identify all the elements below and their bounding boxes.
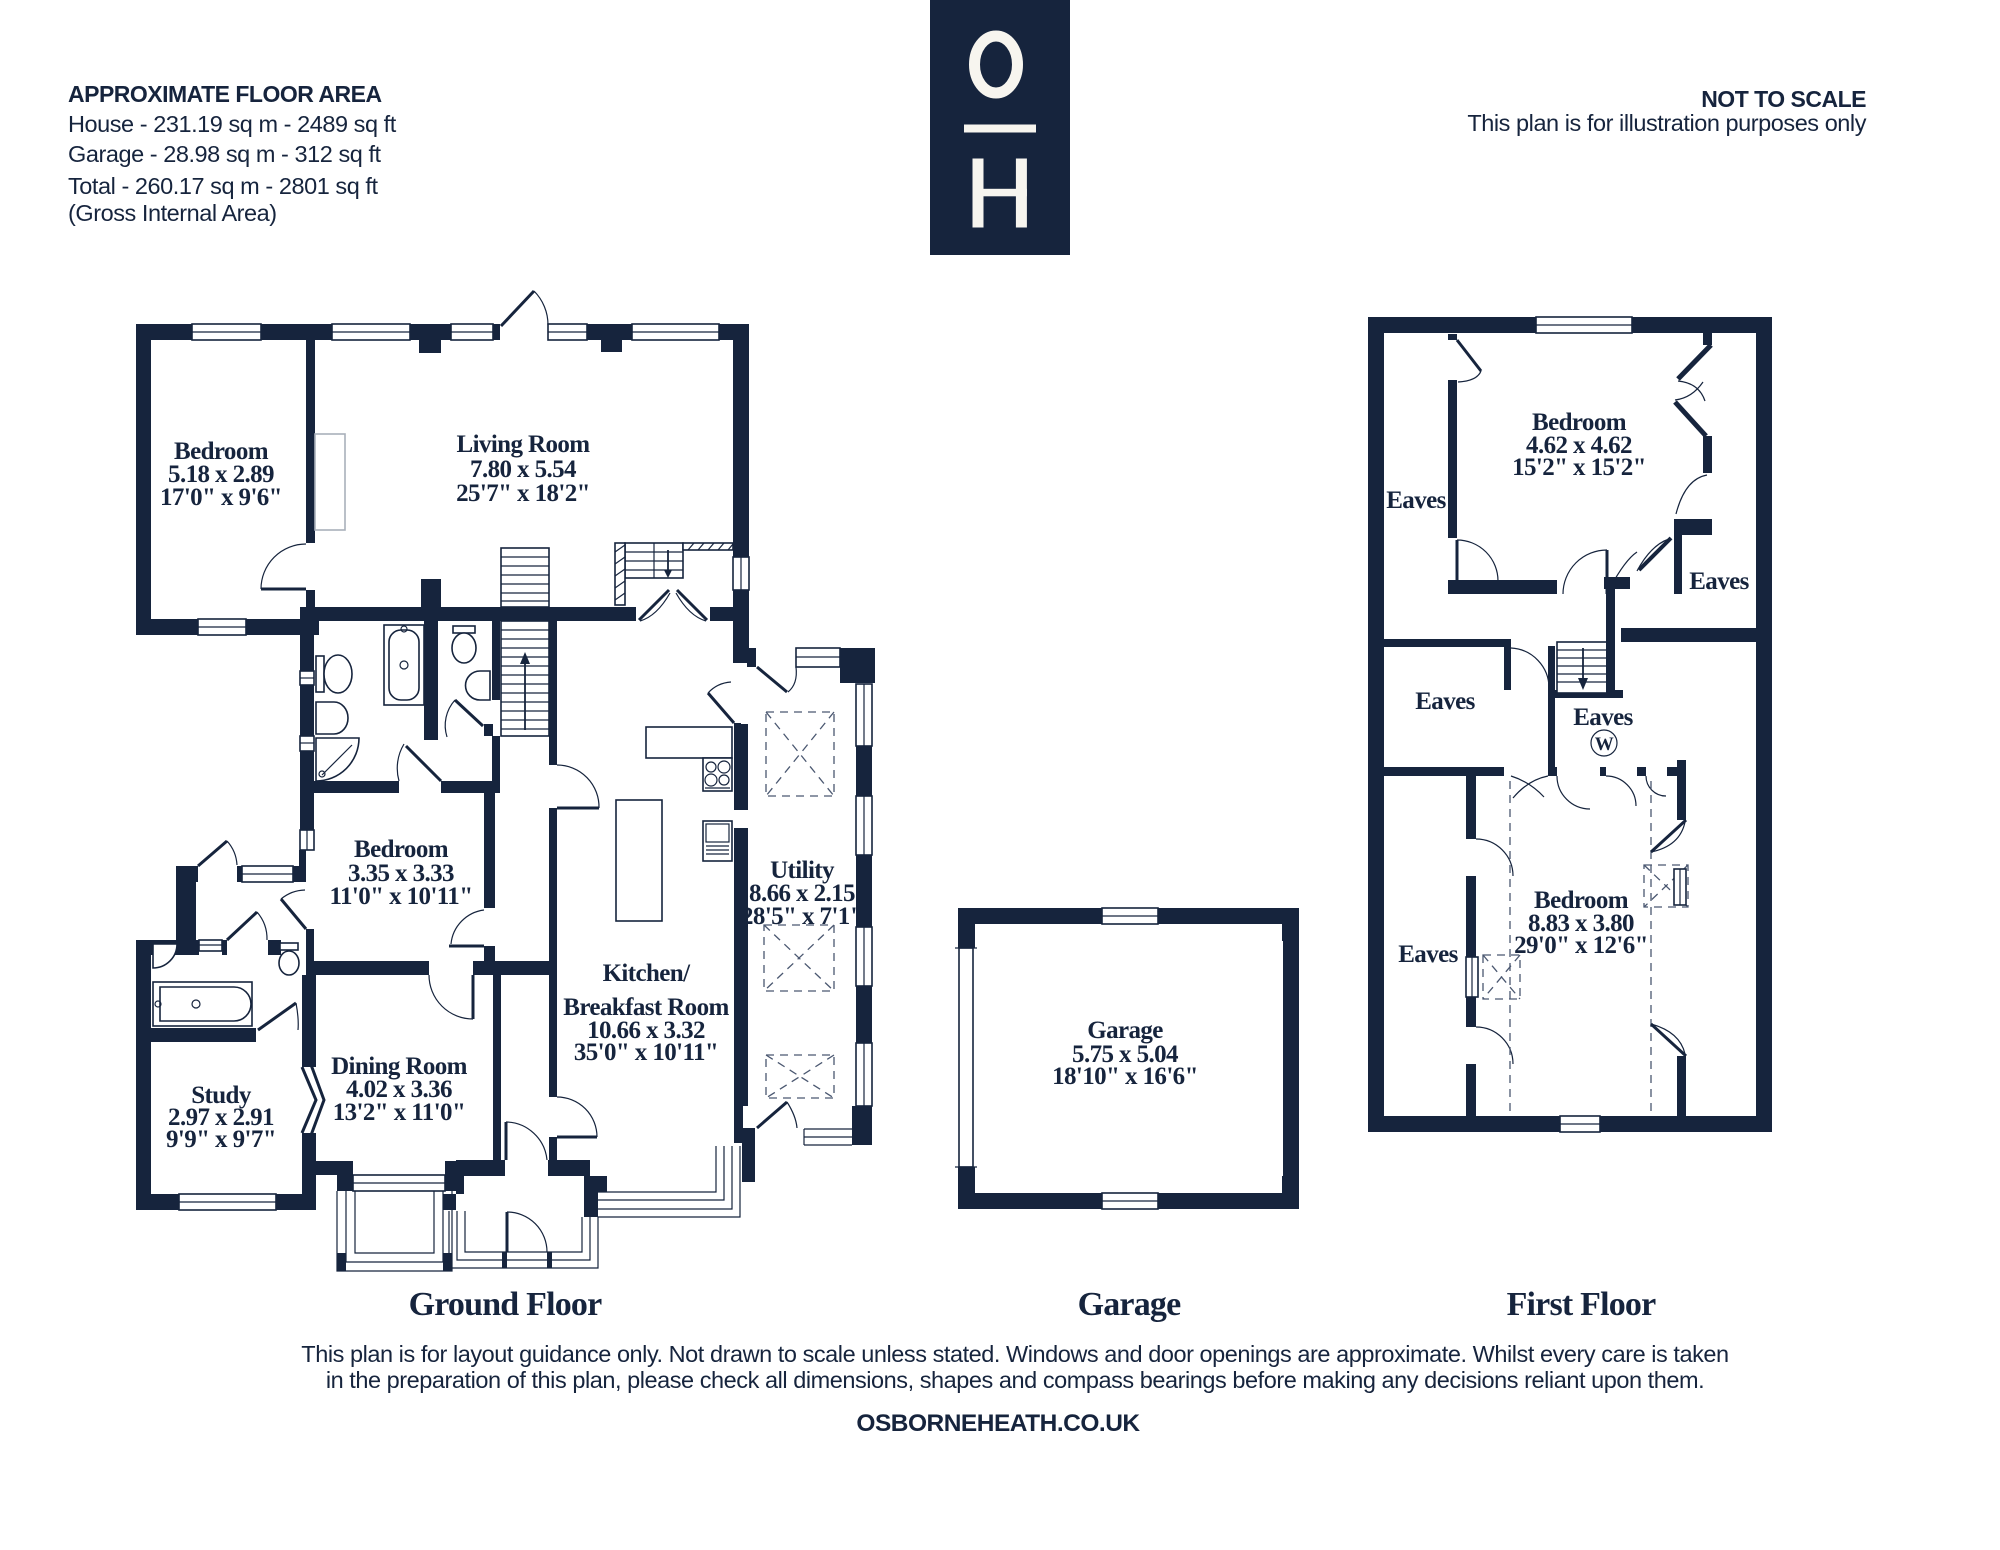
svg-text:APPROXIMATE FLOOR AREA: APPROXIMATE FLOOR AREA xyxy=(68,81,382,107)
svg-text:This plan is for layout guidan: This plan is for layout guidance only. N… xyxy=(301,1341,1728,1367)
svg-text:28'5" x 7'1": 28'5" x 7'1" xyxy=(741,903,863,930)
svg-text:This plan is for illustration: This plan is for illustration purposes o… xyxy=(1467,110,1866,136)
svg-text:(Gross Internal Area): (Gross Internal Area) xyxy=(68,200,277,226)
svg-text:25'7" x 18'2": 25'7" x 18'2" xyxy=(456,480,590,507)
svg-text:Total - 260.17 sq m - 2801 sq: Total - 260.17 sq m - 2801 sq ft xyxy=(68,173,378,199)
svg-text:35'0" x 10'11": 35'0" x 10'11" xyxy=(574,1039,718,1066)
svg-text:Living Room: Living Room xyxy=(457,431,591,458)
svg-text:29'0" x 12'6": 29'0" x 12'6" xyxy=(1514,932,1648,959)
svg-text:Eaves: Eaves xyxy=(1689,568,1749,595)
svg-text:Kitchen/: Kitchen/ xyxy=(603,960,692,987)
svg-text:First Floor: First Floor xyxy=(1507,1286,1657,1323)
svg-text:Eaves: Eaves xyxy=(1415,688,1475,715)
svg-text:7.80 x 5.54: 7.80 x 5.54 xyxy=(470,456,577,483)
svg-text:House - 231.19 sq m - 2489 sq: House - 231.19 sq m - 2489 sq ft xyxy=(68,111,397,137)
svg-text:15'2" x 15'2": 15'2" x 15'2" xyxy=(1512,454,1646,481)
svg-text:18'10" x 16'6": 18'10" x 16'6" xyxy=(1052,1063,1198,1090)
svg-text:Ground Floor: Ground Floor xyxy=(409,1286,603,1323)
svg-text:OSBORNEHEATH.CO.UK: OSBORNEHEATH.CO.UK xyxy=(856,1410,1140,1437)
svg-text:NOT TO SCALE: NOT TO SCALE xyxy=(1701,86,1866,112)
svg-text:Eaves: Eaves xyxy=(1573,704,1633,731)
svg-text:Garage: Garage xyxy=(1087,1017,1163,1044)
svg-text:W: W xyxy=(1595,734,1614,755)
svg-text:11'0" x 10'11": 11'0" x 10'11" xyxy=(330,883,473,910)
svg-text:Garage - 28.98 sq m - 312 sq f: Garage - 28.98 sq m - 312 sq ft xyxy=(68,141,382,167)
svg-text:Eaves: Eaves xyxy=(1398,941,1458,968)
svg-text:Bedroom: Bedroom xyxy=(354,836,449,863)
svg-text:13'2" x 11'0": 13'2" x 11'0" xyxy=(333,1099,465,1126)
svg-text:17'0" x 9'6": 17'0" x 9'6" xyxy=(160,484,282,511)
svg-text:Eaves: Eaves xyxy=(1386,487,1446,514)
svg-text:Garage: Garage xyxy=(1078,1286,1182,1323)
svg-text:9'9" x 9'7": 9'9" x 9'7" xyxy=(166,1126,276,1153)
svg-text:in the preparation of this pla: in the preparation of this plan, please … xyxy=(326,1367,1704,1393)
